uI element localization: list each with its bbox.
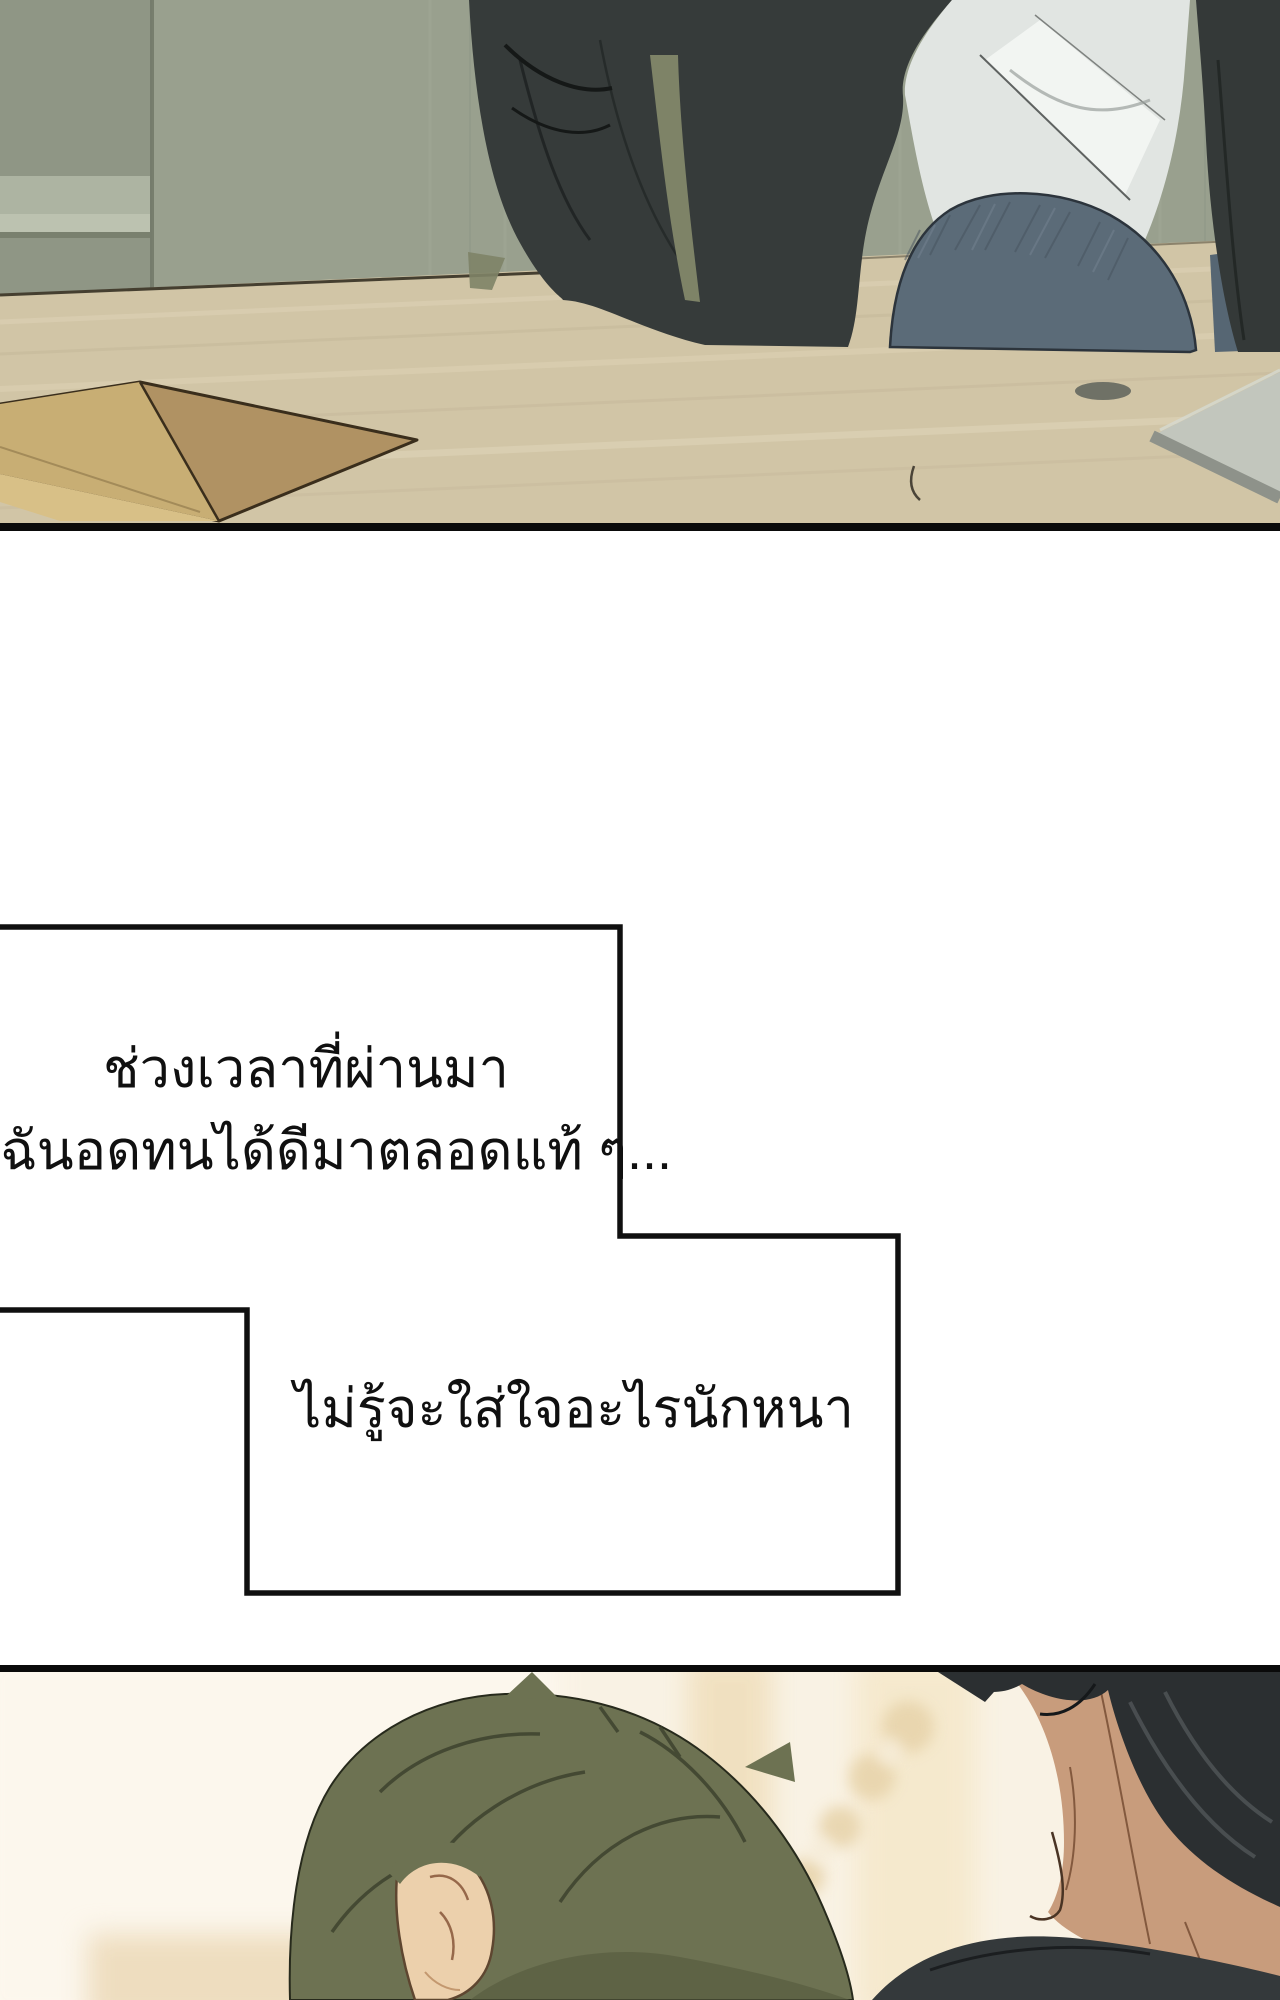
narration-boxes-outline — [0, 900, 1280, 1610]
dark-hair-man — [872, 1672, 1280, 2000]
panel-2-art — [0, 1665, 1280, 2000]
wall-seam — [150, 0, 154, 300]
narration-box-1-line-2: ฉันอดทนได้ดีมาตลอดแท้ ๆ... — [0, 1121, 672, 1181]
comic-page: ช่วงเวลาที่ผ่านมา ฉันอดทนได้ดีมาตลอดแท้ … — [0, 0, 1280, 2000]
jacket-hem-tip — [1075, 382, 1131, 400]
narration-box-2: ไม่รู้จะใส่ใจอะไรนักหนา — [250, 1368, 898, 1450]
panel-1-art — [0, 0, 1280, 531]
narration-box-1: ช่วงเวลาที่ผ่านมา ฉันอดทนได้ดีมาตลอดแท้ … — [0, 1028, 612, 1192]
green-hair-man — [290, 1672, 853, 2000]
wall-sideboard — [0, 176, 150, 218]
narration-box-2-text: ไม่รู้จะใส่ใจอะไรนักหนา — [294, 1379, 854, 1439]
narration-box-1-line-1: ช่วงเวลาที่ผ่านมา — [103, 1039, 509, 1099]
green-hair — [290, 1694, 853, 2000]
panel-1-border — [0, 523, 1280, 531]
